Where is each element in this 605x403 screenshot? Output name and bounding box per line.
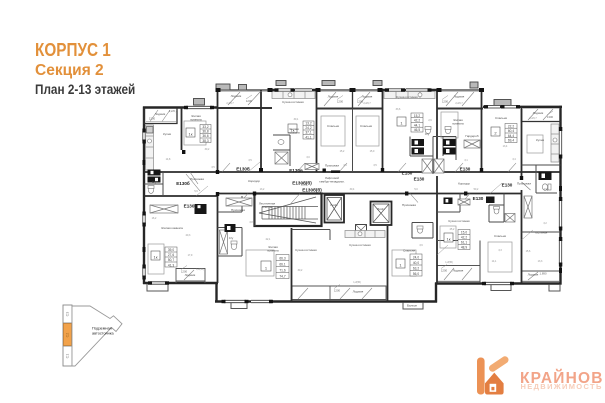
- svg-text:1,2(95): 1,2(95): [445, 261, 453, 264]
- svg-text:13,2: 13,2: [305, 122, 311, 126]
- svg-text:17,9: 17,9: [188, 254, 193, 257]
- svg-text:Е130: Е130: [502, 183, 513, 188]
- svg-text:Лоджия: Лоджия: [528, 273, 539, 277]
- svg-text:Кухня-гостиная: Кухня-гостиная: [295, 248, 317, 252]
- svg-text:3,5: 3,5: [248, 159, 252, 162]
- svg-text:13,3: 13,3: [538, 260, 543, 263]
- svg-text:3,3: 3,3: [498, 249, 502, 252]
- svg-text:15,0: 15,0: [461, 230, 467, 234]
- svg-text:74,7: 74,7: [279, 275, 285, 279]
- svg-text:1200: 1200: [442, 100, 449, 104]
- svg-text:71,6: 71,6: [279, 268, 285, 272]
- svg-text:30,2: 30,2: [298, 269, 303, 272]
- svg-text:Кухня: Кухня: [163, 132, 171, 136]
- svg-text:Прихожая: Прихожая: [517, 182, 531, 186]
- svg-text:Кухня-гостиная: Кухня-гостиная: [349, 243, 371, 247]
- svg-text:клетка: клетка: [262, 205, 271, 209]
- svg-text:комната: комната: [288, 131, 300, 135]
- svg-text:3,2: 3,2: [543, 222, 547, 225]
- svg-text:1200: 1200: [246, 99, 253, 103]
- svg-text:3,6: 3,6: [419, 244, 423, 247]
- svg-text:1200: 1200: [334, 289, 341, 293]
- svg-text:14,1: 14,1: [492, 260, 497, 263]
- svg-text:2,2/0,7: 2,2/0,7: [529, 117, 537, 120]
- svg-text:1к: 1к: [447, 237, 451, 242]
- svg-text:Лоджия: Лоджия: [155, 112, 166, 116]
- svg-text:63,2: 63,2: [413, 266, 419, 270]
- svg-text:Спальня: Спальня: [494, 234, 506, 238]
- svg-text:15,2: 15,2: [414, 114, 420, 118]
- svg-text:комната: комната: [452, 122, 464, 126]
- svg-text:41,3: 41,3: [168, 263, 174, 267]
- svg-text:1к: 1к: [189, 132, 193, 137]
- svg-text:3,4: 3,4: [512, 158, 516, 161]
- svg-text:Подземная: Подземная: [92, 327, 112, 331]
- svg-text:3,5: 3,5: [211, 166, 215, 169]
- svg-text:42,2: 42,2: [461, 235, 467, 239]
- svg-text:С3: С3: [66, 312, 70, 317]
- svg-text:Е130б: Е130б: [176, 180, 190, 186]
- svg-text:13,2: 13,2: [260, 188, 265, 191]
- svg-text:Гостиная: Гостиная: [535, 231, 548, 235]
- svg-text:Коридор: Коридор: [458, 182, 470, 186]
- svg-text:1200: 1200: [441, 269, 448, 273]
- svg-text:Лифт: Лифт: [377, 207, 385, 211]
- svg-text:Е130: Е130: [414, 177, 425, 182]
- svg-text:3,5: 3,5: [343, 164, 347, 167]
- svg-text:48,9: 48,9: [461, 246, 467, 250]
- svg-text:22,1: 22,1: [266, 238, 271, 241]
- svg-text:69,4: 69,4: [508, 139, 514, 143]
- svg-text:Е130: Е130: [402, 171, 413, 176]
- svg-text:24,0: 24,0: [413, 255, 419, 259]
- svg-text:Лоджия: Лоджия: [454, 95, 465, 99]
- svg-text:Коридор: Коридор: [248, 179, 260, 183]
- svg-text:1300: 1300: [547, 115, 554, 119]
- svg-text:Е130б(б): Е130б(б): [302, 187, 322, 193]
- svg-text:50,7: 50,7: [168, 258, 174, 262]
- svg-text:Лоджия: Лоджия: [533, 111, 544, 115]
- svg-text:1,2(95): 1,2(95): [353, 281, 361, 284]
- svg-text:Лоджия: Лоджия: [231, 94, 242, 98]
- svg-text:1200: 1200: [337, 100, 344, 104]
- svg-text:1,2(95): 1,2(95): [196, 268, 204, 271]
- svg-text:41,1: 41,1: [305, 135, 311, 139]
- svg-text:42,2: 42,2: [414, 119, 420, 123]
- svg-text:НЕДВИЖИМОСТЬ: НЕДВИЖИМОСТЬ: [521, 382, 603, 391]
- svg-text:1200: 1200: [149, 117, 156, 121]
- svg-text:Спальня: Спальня: [360, 124, 372, 128]
- svg-text:Прихожая: Прихожая: [402, 203, 416, 207]
- svg-text:36,8: 36,8: [202, 130, 208, 134]
- svg-text:38,3: 38,3: [202, 139, 208, 143]
- svg-text:66,3: 66,3: [279, 256, 285, 260]
- svg-text:25,2: 25,2: [450, 228, 455, 231]
- svg-text:15,0: 15,0: [370, 150, 375, 153]
- svg-text:Спальня: Спальня: [403, 249, 415, 253]
- svg-text:24,2: 24,2: [305, 126, 311, 130]
- svg-text:3,8: 3,8: [249, 221, 253, 224]
- svg-text:37,1: 37,1: [305, 131, 311, 135]
- svg-text:Е130в: Е130в: [289, 168, 303, 173]
- svg-text:1к: 1к: [154, 255, 158, 260]
- svg-text:Е130г: Е130г: [184, 204, 197, 209]
- svg-text:36,6: 36,6: [202, 134, 208, 138]
- svg-text:Е130: Е130: [460, 167, 471, 172]
- svg-text:44,1: 44,1: [414, 123, 420, 127]
- svg-text:комната: комната: [190, 118, 202, 122]
- svg-text:15,6: 15,6: [526, 250, 531, 253]
- svg-text:1,890: 1,890: [540, 272, 547, 276]
- svg-text:Лоджия: Лоджия: [453, 269, 464, 273]
- svg-text:С2: С2: [66, 333, 70, 338]
- svg-text:39,0: 39,0: [168, 248, 174, 252]
- svg-text:С1: С1: [66, 354, 70, 359]
- svg-text:1200: 1200: [181, 270, 188, 274]
- svg-text:30,2: 30,2: [205, 148, 210, 151]
- svg-text:Кухня-гостиная: Кухня-гостиная: [396, 95, 418, 99]
- svg-text:3,0: 3,0: [306, 156, 310, 159]
- svg-text:5,0: 5,0: [414, 188, 418, 191]
- svg-text:Лоджия: Лоджия: [353, 290, 364, 294]
- svg-text:Кухня гостиная: Кухня гостиная: [448, 219, 469, 223]
- svg-text:С/у: С/у: [544, 188, 549, 192]
- svg-text:3,5: 3,5: [373, 164, 377, 167]
- svg-text:15,2: 15,2: [340, 150, 345, 153]
- svg-text:Кухня: Кухня: [536, 138, 544, 142]
- svg-text:Е130б: Е130б: [236, 166, 250, 172]
- svg-text:2,6: 2,6: [428, 119, 432, 122]
- svg-text:комната: комната: [267, 249, 279, 253]
- svg-text:40,0: 40,0: [413, 261, 419, 265]
- svg-text:Лоджия: Лоджия: [362, 95, 373, 99]
- svg-text:С/у: С/у: [152, 180, 157, 184]
- svg-text:60,4: 60,4: [508, 129, 514, 133]
- svg-text:56,0: 56,0: [413, 272, 419, 276]
- svg-text:5,6: 5,6: [194, 190, 198, 193]
- svg-text:16,2: 16,2: [152, 217, 157, 220]
- svg-text:Балкон: Балкон: [407, 304, 417, 308]
- svg-text:30,4: 30,4: [350, 188, 355, 191]
- svg-text:14,8: 14,8: [166, 158, 171, 161]
- svg-text:30,1: 30,1: [294, 118, 299, 121]
- svg-text:Лифт: Лифт: [330, 203, 338, 207]
- svg-text:50,2: 50,2: [474, 188, 479, 191]
- svg-text:1500: 1500: [301, 183, 308, 187]
- svg-text:27,6: 27,6: [168, 253, 174, 257]
- svg-text:Прихожая: Прихожая: [231, 208, 245, 212]
- svg-text:64,4: 64,4: [508, 134, 514, 138]
- svg-text:33,6: 33,6: [396, 108, 401, 111]
- svg-text:2,2/0,7: 2,2/0,7: [169, 109, 178, 113]
- svg-text:61,1: 61,1: [461, 240, 467, 244]
- svg-text:тамбур-незадымл.: тамбур-незадымл.: [319, 179, 345, 183]
- svg-text:Лоджия: Лоджия: [328, 95, 339, 99]
- svg-text:46,5: 46,5: [414, 128, 420, 132]
- svg-text:2,2/0,7: 2,2/0,7: [363, 102, 371, 105]
- svg-text:2,2/0,7: 2,2/0,7: [455, 102, 463, 105]
- svg-text:Прихожая: Прихожая: [325, 164, 339, 168]
- svg-text:Жилая комната: Жилая комната: [161, 226, 183, 230]
- svg-text:13,4: 13,4: [503, 145, 508, 148]
- svg-text:Прихожая: Прихожая: [190, 177, 204, 181]
- svg-text:Е130: Е130: [473, 196, 484, 201]
- svg-text:33,2: 33,2: [202, 125, 208, 129]
- svg-text:2,2/0,7: 2,2/0,7: [226, 102, 234, 105]
- svg-text:3,1: 3,1: [464, 159, 468, 162]
- svg-text:Спальня: Спальня: [327, 124, 339, 128]
- svg-text:С/у: С/у: [229, 236, 234, 240]
- svg-text:Гардероб: Гардероб: [465, 134, 478, 138]
- svg-text:66,1: 66,1: [279, 262, 285, 266]
- svg-text:Кухня-гостиная: Кухня-гостиная: [282, 100, 304, 104]
- svg-text:Спальня: Спальня: [495, 116, 507, 120]
- svg-text:20,3: 20,3: [186, 234, 191, 237]
- svg-text:автостоянка: автостоянка: [92, 331, 114, 335]
- svg-text:Лоджия: Лоджия: [185, 273, 196, 277]
- svg-text:22,2: 22,2: [508, 124, 514, 128]
- svg-text:С/у: С/у: [425, 132, 430, 136]
